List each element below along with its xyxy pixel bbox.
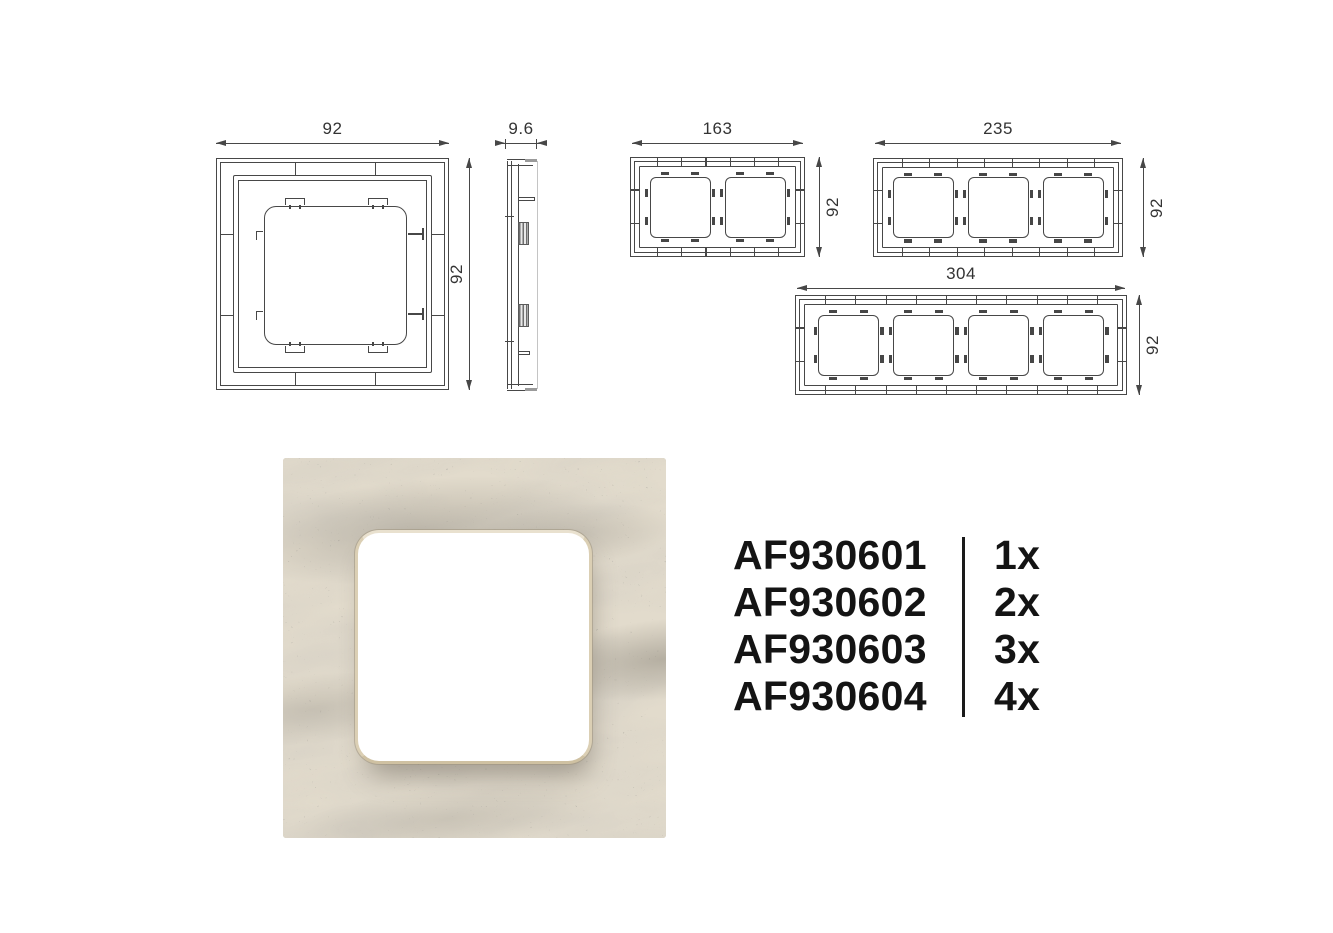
dim-arrow-down-icon: [1136, 385, 1142, 395]
tick-mark: [1012, 159, 1013, 167]
dim-arrow-left-icon: [495, 140, 505, 146]
dimension-width-1gang: 92: [216, 119, 449, 144]
tick-mark: [220, 234, 233, 235]
clip-mark: [860, 310, 868, 313]
clip-mark: [935, 377, 943, 380]
tick-mark: [957, 159, 958, 167]
clip-mark: [787, 217, 790, 225]
dimension-line: [632, 143, 803, 144]
dim-arrow-up-icon: [466, 158, 472, 168]
tick-mark: [432, 315, 445, 316]
dim-arrow-right-icon: [793, 140, 803, 146]
clip-mark: [1010, 310, 1018, 313]
dim-arrow-left-icon: [875, 140, 885, 146]
tick-mark: [295, 373, 296, 386]
dimension-height-4gang: 92: [1139, 295, 1140, 395]
clip-mark: [1030, 217, 1033, 225]
product-code: AF930601: [733, 532, 962, 579]
tick-mark: [916, 296, 917, 304]
dimension-label: 9.6: [502, 119, 540, 139]
tick-mark: [1006, 296, 1007, 304]
clip-mark: [408, 313, 423, 315]
tick-mark: [536, 139, 537, 149]
clip-mark: [935, 310, 943, 313]
gang-opening: [968, 315, 1029, 376]
tick-mark: [432, 234, 445, 235]
dim-arrow-down-icon: [816, 247, 822, 257]
product-qty: 3x: [994, 626, 1040, 673]
tick-mark: [1097, 386, 1098, 394]
dimension-label: 163: [632, 119, 803, 139]
clip-mark: [1084, 239, 1092, 242]
clip-mark: [964, 355, 967, 363]
tick-mark: [730, 248, 731, 256]
clip-mark: [1038, 190, 1041, 198]
drawing-2gang-front-view: [630, 157, 805, 257]
tick-mark: [1094, 159, 1095, 167]
clip-mark: [1039, 355, 1042, 363]
gang-openings-row: [886, 171, 1110, 244]
clip-mark: [889, 355, 892, 363]
dim-arrow-up-icon: [816, 157, 822, 167]
tick-mark: [1067, 296, 1068, 304]
gang-opening: [1043, 177, 1104, 238]
dim-arrow-right-icon: [439, 140, 449, 146]
tick-mark: [1037, 386, 1038, 394]
tick-mark: [946, 296, 947, 304]
clip-mark: [256, 231, 263, 240]
tick-mark: [855, 386, 856, 394]
clip-mark: [979, 377, 987, 380]
clip-mark: [1030, 327, 1033, 335]
gang-openings-row: [808, 308, 1114, 382]
clip-mark: [880, 327, 883, 335]
tick-mark: [796, 223, 804, 224]
dimension-label: 92: [447, 264, 467, 284]
clip-mark: [1105, 190, 1108, 198]
dim-arrow-left-icon: [632, 140, 642, 146]
tick-mark: [1114, 223, 1122, 224]
gang-opening: [818, 315, 879, 376]
clip-mark: [256, 311, 263, 320]
tick-mark: [705, 158, 706, 166]
tick-mark: [1118, 327, 1126, 328]
dim-arrow-up-icon: [1136, 295, 1142, 305]
tick-mark: [976, 296, 977, 304]
drawing-side-profile: [507, 159, 538, 391]
tick-mark: [976, 386, 977, 394]
dimension-width-4gang: 304: [797, 264, 1125, 289]
dimension-width-2gang: 163: [632, 119, 803, 144]
clip-mark: [979, 310, 987, 313]
clip-mark: [904, 310, 912, 313]
clip-mark: [829, 310, 837, 313]
profile-face: [507, 161, 512, 389]
clip-mark: [829, 377, 837, 380]
clip-mark: [712, 217, 715, 225]
tick-mark: [984, 248, 985, 256]
tick-mark: [1067, 386, 1068, 394]
tick-mark: [796, 189, 804, 190]
tick-mark: [855, 296, 856, 304]
tick-mark: [778, 248, 779, 256]
clip-mark: [720, 189, 723, 197]
clip-mark: [285, 198, 305, 205]
mounting-clip: [518, 304, 529, 327]
clip-mark: [979, 239, 987, 242]
dimension-height-2gang: 92: [819, 157, 820, 257]
profile-edge: [537, 161, 538, 389]
tick-mark: [1006, 386, 1007, 394]
clip-mark: [963, 217, 966, 225]
clip-mark: [1030, 355, 1033, 363]
product-qty-column: 1x 2x 3x 4x: [965, 532, 1040, 720]
clip-mark: [1054, 377, 1062, 380]
gang-opening: [264, 206, 407, 345]
drawing-4gang-front-view: [795, 295, 1127, 395]
gang-opening: [650, 177, 711, 238]
clip-mark: [766, 239, 774, 242]
clip-mark: [1105, 355, 1108, 363]
clip-mark: [691, 172, 699, 175]
dimension-label: 92: [1147, 198, 1167, 218]
clip-mark: [518, 197, 535, 201]
gang-opening: [725, 177, 786, 238]
tick-mark: [375, 162, 376, 175]
tick-mark: [681, 248, 682, 256]
dimension-line: [216, 143, 449, 144]
tick-mark: [1039, 159, 1040, 167]
tick-mark: [929, 159, 930, 167]
clip-mark: [814, 327, 817, 335]
clip-mark: [1105, 327, 1108, 335]
dimension-label: 235: [875, 119, 1121, 139]
clip-mark: [904, 377, 912, 380]
dim-arrow-left-icon: [216, 140, 226, 146]
datasheet-page: 92 92 9.6: [0, 0, 1333, 933]
clip-mark: [518, 351, 530, 355]
dimension-line: [1139, 295, 1140, 395]
product-photo: [283, 458, 666, 838]
clip-mark: [889, 327, 892, 335]
clip-mark: [814, 355, 817, 363]
tick-mark: [657, 248, 658, 256]
dim-arrow-down-icon: [1140, 247, 1146, 257]
tick-mark: [886, 296, 887, 304]
clip-mark: [661, 239, 669, 242]
dim-arrow-right-icon: [1115, 285, 1125, 291]
clip-mark: [963, 190, 966, 198]
tick-mark: [220, 315, 233, 316]
product-code-column: AF930601 AF930602 AF930603 AF930604: [733, 532, 962, 720]
tick-mark: [1067, 159, 1068, 167]
clip-mark: [888, 190, 891, 198]
profile-cap: [507, 384, 533, 391]
clip-mark: [1039, 327, 1042, 335]
clip-mark: [1038, 217, 1041, 225]
frame-opening-cutout: [355, 530, 592, 764]
dimension-line: [469, 158, 470, 390]
tick-mark: [505, 216, 514, 217]
tick-mark: [946, 386, 947, 394]
clip-mark: [736, 239, 744, 242]
clip-mark: [368, 346, 388, 353]
clip-mark: [934, 173, 942, 176]
dim-arrow-right-icon: [537, 140, 547, 146]
dim-arrow-up-icon: [1140, 158, 1146, 168]
clip-mark: [955, 217, 958, 225]
product-qty: 4x: [994, 673, 1040, 720]
dim-arrow-down-icon: [466, 380, 472, 390]
dimension-label: 92: [823, 197, 843, 217]
tick-mark: [754, 248, 755, 256]
tick-mark: [874, 223, 882, 224]
clip-mark: [1009, 173, 1017, 176]
tick-mark: [705, 248, 706, 256]
tick-mark: [1118, 361, 1126, 362]
clip-mark: [1105, 217, 1108, 225]
tick-mark: [957, 248, 958, 256]
clip-mark: [1010, 377, 1018, 380]
tick-mark: [886, 386, 887, 394]
dimension-line: [1143, 158, 1144, 257]
clip-mark: [787, 189, 790, 197]
dimension-line: [797, 288, 1125, 289]
profile-cap: [507, 159, 533, 166]
clip-mark: [691, 239, 699, 242]
product-code: AF930604: [733, 673, 962, 720]
product-list: AF930601 AF930602 AF930603 AF930604 1x 2…: [733, 532, 1040, 720]
clip-mark: [1085, 377, 1093, 380]
tick-mark: [1114, 190, 1122, 191]
clip-mark: [712, 189, 715, 197]
drawing-3gang-front-view: [873, 158, 1123, 257]
tick-mark: [657, 158, 658, 166]
clip-mark: [766, 172, 774, 175]
clip-mark: [955, 327, 958, 335]
product-qty: 1x: [994, 532, 1040, 579]
clip-mark: [964, 327, 967, 335]
drawing-1gang-front-view: [216, 158, 449, 390]
gang-opening: [1043, 315, 1104, 376]
clip-mark: [1009, 239, 1017, 242]
dim-arrow-left-icon: [797, 285, 807, 291]
dimension-label: 92: [1143, 335, 1163, 355]
dimension-label: 304: [797, 264, 1125, 284]
tick-mark: [796, 327, 804, 328]
mounting-clip: [518, 222, 529, 245]
tick-mark: [929, 248, 930, 256]
clip-mark: [1085, 310, 1093, 313]
clip-mark: [1084, 173, 1092, 176]
tick-mark: [874, 190, 882, 191]
tick-mark: [916, 386, 917, 394]
dimension-depth-side: 9.6: [502, 119, 540, 144]
dimension-width-3gang: 235: [875, 119, 1121, 144]
tick-mark: [295, 162, 296, 175]
tick-mark: [375, 373, 376, 386]
clip-mark: [661, 172, 669, 175]
tick-mark: [1012, 248, 1013, 256]
clip-mark: [285, 346, 305, 353]
tick-mark: [754, 158, 755, 166]
clip-mark: [955, 355, 958, 363]
clip-mark: [955, 190, 958, 198]
clip-mark: [904, 173, 912, 176]
clip-mark: [860, 377, 868, 380]
dimension-line: [819, 157, 820, 257]
dim-arrow-right-icon: [1111, 140, 1121, 146]
tick-mark: [1037, 296, 1038, 304]
clip-mark: [720, 217, 723, 225]
dimension-label: 92: [216, 119, 449, 139]
gang-openings-row: [643, 170, 792, 244]
dimension-height-1gang: 92: [469, 158, 470, 390]
clip-mark: [645, 189, 648, 197]
clip-mark: [904, 239, 912, 242]
tick-mark: [1039, 248, 1040, 256]
clip-mark: [368, 198, 388, 205]
dimension-line: [502, 143, 540, 144]
clip-mark: [934, 239, 942, 242]
product-qty: 2x: [994, 579, 1040, 626]
tick-mark: [825, 386, 826, 394]
dimension-line: [875, 143, 1121, 144]
tick-mark: [631, 189, 639, 190]
clip-mark: [736, 172, 744, 175]
tick-mark: [505, 139, 506, 149]
tick-mark: [631, 223, 639, 224]
clip-mark: [408, 233, 423, 235]
clip-mark: [1030, 190, 1033, 198]
tick-mark: [825, 296, 826, 304]
clip-mark: [645, 217, 648, 225]
clip-mark: [888, 217, 891, 225]
tick-mark: [681, 158, 682, 166]
tick-mark: [902, 159, 903, 167]
tick-mark: [505, 341, 514, 342]
dimension-height-3gang: 92: [1143, 158, 1144, 257]
clip-mark: [880, 355, 883, 363]
tick-mark: [1094, 248, 1095, 256]
clip-mark: [1054, 173, 1062, 176]
clip-mark: [1054, 310, 1062, 313]
tick-mark: [796, 361, 804, 362]
tick-mark: [984, 159, 985, 167]
tick-mark: [1067, 248, 1068, 256]
gang-opening: [968, 177, 1029, 238]
gang-opening: [893, 177, 954, 238]
product-code: AF930603: [733, 626, 962, 673]
gang-opening: [893, 315, 954, 376]
tick-mark: [902, 248, 903, 256]
tick-mark: [778, 158, 779, 166]
tick-mark: [1097, 296, 1098, 304]
clip-mark: [979, 173, 987, 176]
clip-mark: [1054, 239, 1062, 242]
product-code: AF930602: [733, 579, 962, 626]
tick-mark: [730, 158, 731, 166]
